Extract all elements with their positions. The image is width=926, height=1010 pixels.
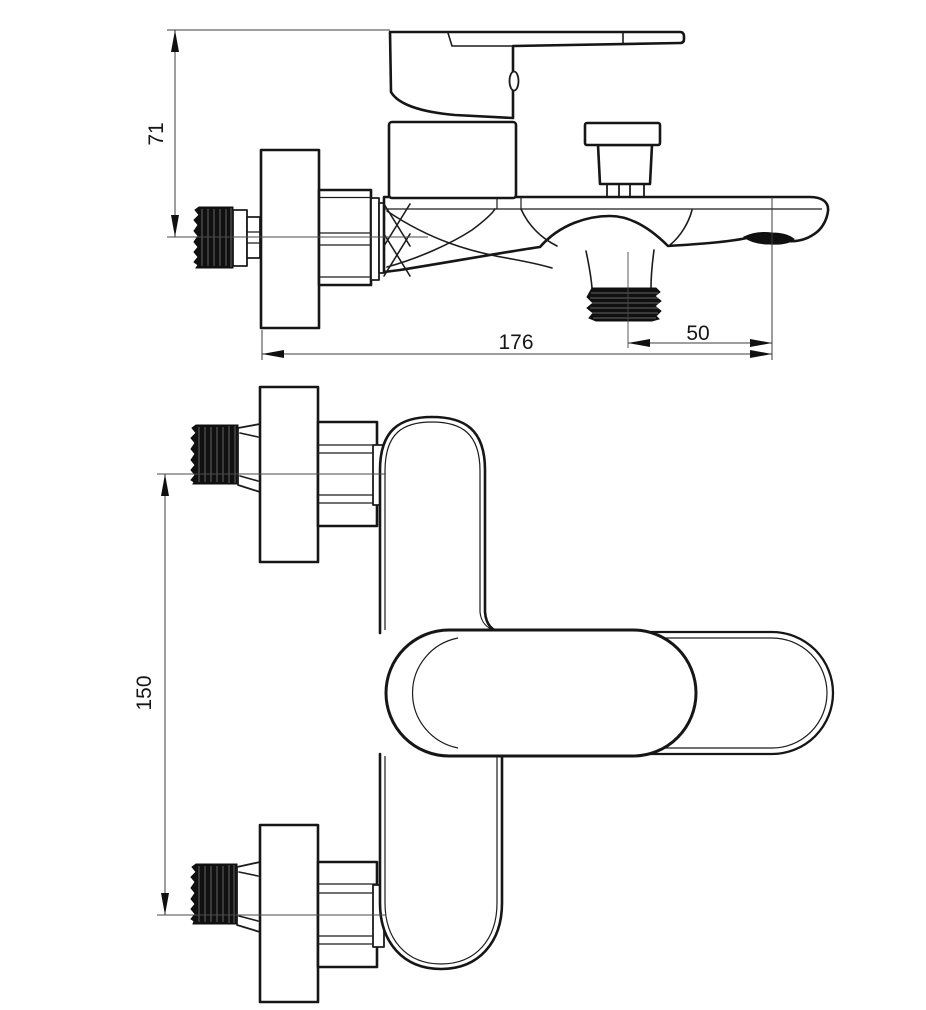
escutcheon-lower	[260, 825, 318, 1002]
diverter-cap	[585, 123, 660, 145]
front-view: 150	[133, 387, 833, 1002]
pipe-stem	[247, 217, 260, 258]
wall-supply-pipe-side	[194, 207, 260, 268]
dimension-71: 71	[145, 30, 179, 237]
diverter-stem	[598, 145, 652, 184]
pipe-collar	[233, 210, 247, 266]
shower-outlet-neck	[586, 250, 654, 288]
dim-label-50: 50	[686, 322, 709, 345]
shower-hose-outlet-thread	[587, 288, 661, 321]
wall-connection-upper	[191, 387, 384, 562]
wall-connection-lower	[191, 825, 384, 1002]
dimension-150: 150	[133, 474, 169, 915]
connection-nut-side	[319, 190, 371, 285]
dim-label-150: 150	[133, 675, 156, 710]
technical-drawing-page: 71 176 50	[0, 0, 926, 1010]
dim-label-71: 71	[145, 122, 168, 145]
diverter-knob	[585, 123, 660, 197]
dim-label-176: 176	[498, 331, 533, 354]
cartridge-housing	[389, 122, 516, 198]
diverter-foot	[607, 184, 619, 197]
connection-nut-lower	[318, 862, 377, 967]
escutcheon-upper	[260, 387, 318, 562]
diverter-foot	[630, 184, 644, 197]
union-plate	[371, 198, 379, 280]
body-neck-front	[380, 417, 503, 633]
side-view: 71 176 50	[145, 30, 828, 360]
spout-body-side	[384, 197, 828, 321]
handle-grip-front	[386, 630, 696, 756]
lever-handle-side	[390, 32, 684, 118]
escutcheon-side	[261, 150, 319, 328]
screw-cover	[510, 72, 519, 91]
body-spout-front	[380, 754, 502, 969]
mixer-tap-drawing: 71 176 50	[0, 0, 926, 1010]
